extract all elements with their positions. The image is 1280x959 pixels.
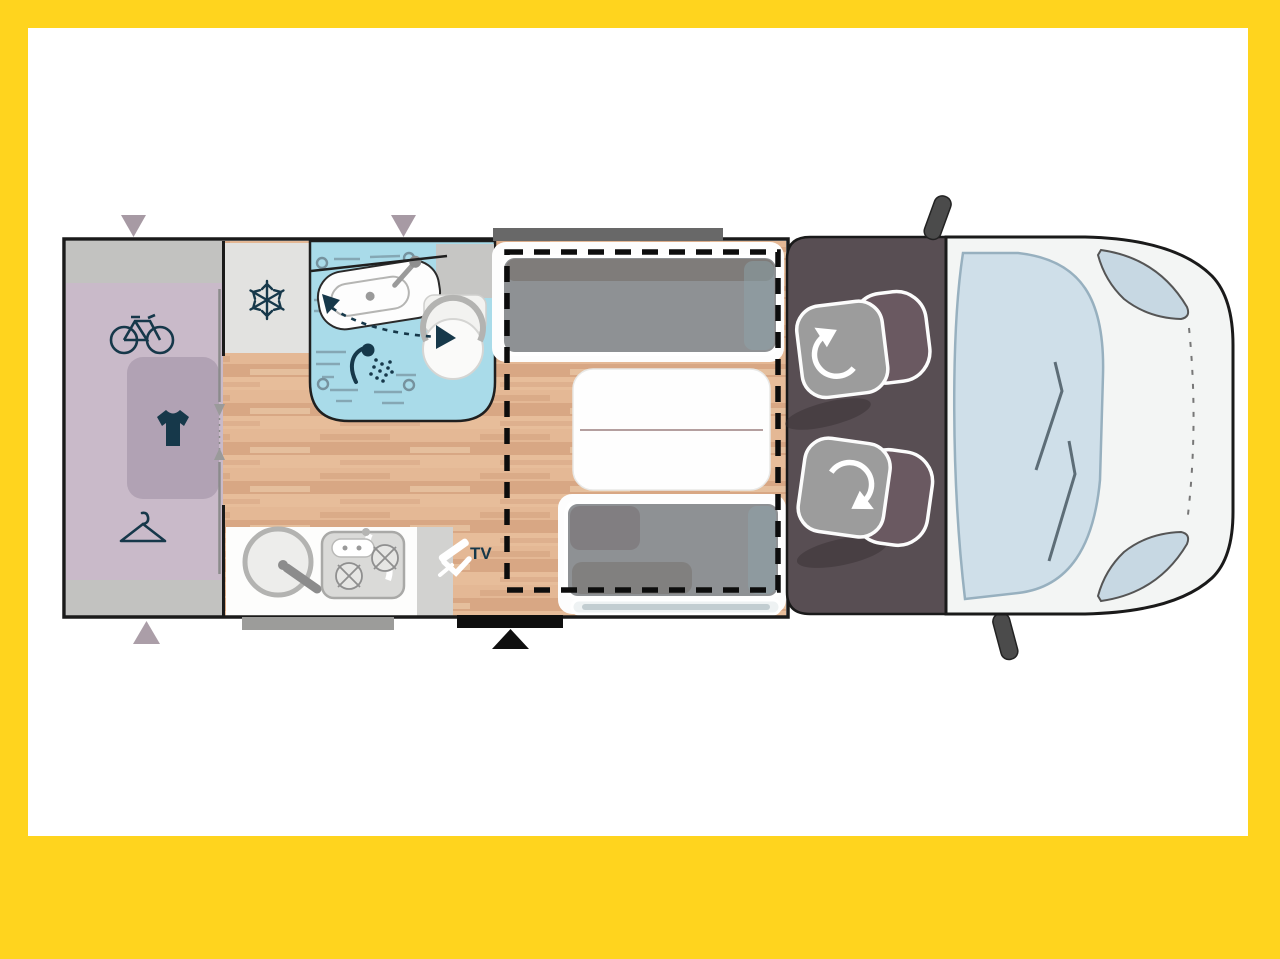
bench-seat-top	[502, 256, 778, 354]
garage-door-marker-icon	[133, 621, 160, 644]
footer-bar: MS GmbH REISEMOBILE Mobile Freizeit geni…	[0, 836, 1280, 959]
fridge-zone	[224, 243, 310, 353]
kitchen-step	[242, 617, 394, 630]
toilet-icon	[423, 295, 486, 379]
bench-seat-bottom	[566, 502, 780, 598]
advert-image: TV	[0, 0, 1280, 959]
entry-step-shelf	[572, 600, 780, 614]
entry-door-bar	[457, 615, 563, 628]
kitchen-zone	[226, 527, 453, 616]
habitation-module: TV	[64, 228, 788, 617]
vehicle-front	[922, 194, 1233, 662]
kitchen-side	[417, 527, 453, 616]
dinette-table	[573, 369, 770, 490]
rear-garage-zone	[66, 241, 225, 616]
stove-icon	[322, 528, 404, 598]
windshield	[954, 253, 1103, 599]
garage-bottom-strip	[66, 580, 223, 616]
garage-top-strip	[66, 241, 223, 283]
bathroom-cabinet	[436, 244, 494, 298]
bathroom-zone	[310, 241, 495, 421]
motorhome-floorplan: TV	[0, 0, 1280, 959]
mirror-icon-bottom	[991, 611, 1020, 661]
cab-zone	[782, 237, 946, 614]
awning-rail	[493, 228, 723, 241]
window-marker-icon	[121, 215, 146, 237]
mirror-icon-top	[922, 194, 953, 242]
entry-arrow-icon	[492, 629, 529, 649]
window-marker-icon	[391, 215, 416, 237]
tv-label: TV	[470, 544, 492, 563]
